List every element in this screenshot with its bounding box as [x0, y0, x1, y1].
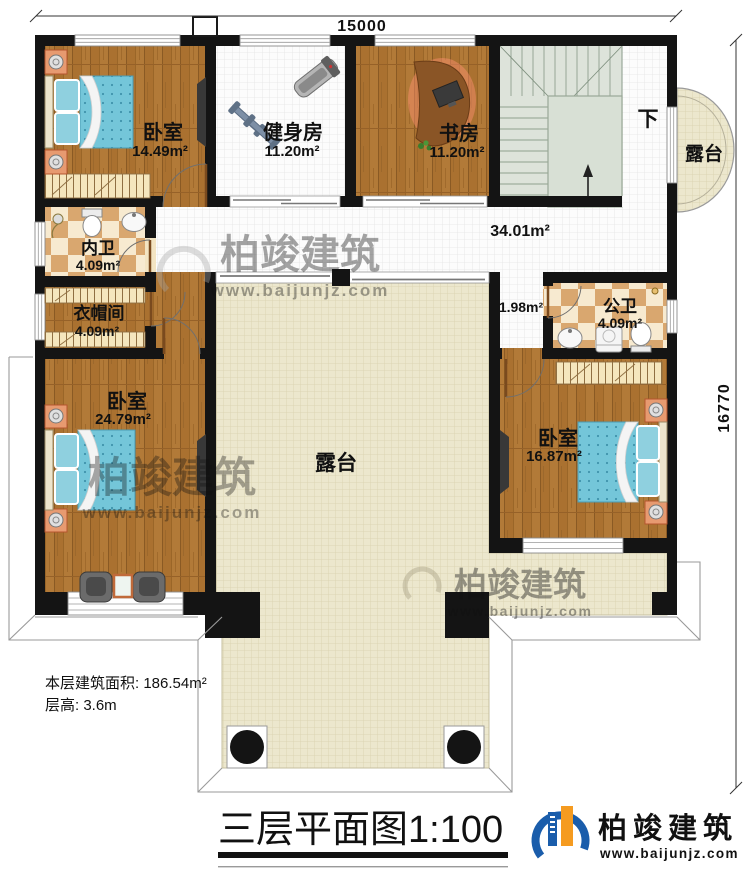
label-terrace-center: 露台 [315, 451, 357, 475]
brand-swoosh-icon [536, 815, 586, 856]
wall-bedroom-br-left [489, 359, 500, 538]
label-study: 书房 [439, 121, 479, 145]
stair-landing [548, 96, 622, 207]
watermark-name: 柏竣建筑 [454, 566, 586, 603]
dim-right-value: 16770 [716, 383, 733, 433]
label-corridor-area: 34.01m² [490, 223, 550, 240]
watermark-bedroom: 柏竣建筑 www.baijunjz.com [82, 454, 262, 522]
area-public-bath: 4.09m² [598, 315, 643, 331]
column-terrace-far-right [652, 592, 677, 615]
side-table [114, 575, 132, 597]
brand-name: 柏竣建筑 [598, 811, 738, 845]
label-bedroom-br: 卧室 [538, 426, 578, 450]
tv-bedroom-top-left [197, 77, 206, 147]
title-underline-thick [218, 852, 508, 858]
area-bedroom-bl: 24.79m² [95, 411, 151, 428]
window-top-gym [240, 35, 330, 46]
label-bedroom-bl: 卧室 [107, 389, 147, 413]
watermark-url: www.baijunjz.com [210, 281, 390, 300]
chimney [193, 17, 217, 36]
info-floor-area: 本层建筑面积: 186.54m² [45, 675, 207, 692]
wall-vestibule-left [489, 272, 500, 359]
wardrobe-cloakroom-top [45, 288, 145, 303]
label-stairs-down: 下 [638, 108, 659, 131]
door-terrace-right [667, 107, 677, 183]
opening-vestibule [500, 272, 543, 283]
floor-vestibule [500, 283, 543, 348]
tv-bedroom-bottom-right [500, 430, 509, 494]
area-bedroom-br: 16.87m² [526, 448, 582, 465]
window-left-cloakroom [35, 294, 45, 340]
label-bedroom-tl: 卧室 [143, 120, 183, 144]
page-title: 三层平面图1:100 [218, 809, 503, 851]
window-top-study [375, 35, 475, 46]
title-block: 三层平面图1:100 [218, 809, 508, 867]
area-inner-bath: 4.09m² [76, 257, 121, 273]
slider-study [363, 196, 487, 207]
wall-gym-study [345, 46, 356, 196]
watermark-name: 柏竣建筑 [88, 454, 256, 501]
watermark-url: www.baijunjz.com [82, 503, 262, 522]
window-right-publicbath [667, 300, 677, 333]
wardrobe-bedroom-top-left [45, 174, 150, 198]
label-gym: 健身房 [263, 120, 323, 144]
wardrobe-bedroom-bottom-right [556, 362, 662, 384]
window-left-innerbath [35, 222, 45, 266]
watermark-name: 柏竣建筑 [220, 233, 380, 277]
window-top-bedroom [75, 35, 180, 46]
wall-exterior-right-upper [667, 35, 677, 107]
wall-cloakroom-bottom [35, 348, 156, 359]
label-public-bath: 公卫 [603, 297, 637, 316]
slider-gym [230, 196, 340, 207]
brand-url: www.baijunjz.com [599, 846, 739, 861]
label-vestibule-area: 1.98m² [499, 299, 544, 315]
label-terrace-right: 露台 [685, 142, 723, 165]
dim-top-value: 15000 [337, 18, 387, 35]
wall-innerbath-bottom [35, 276, 156, 287]
wall-study-stairs [489, 46, 500, 196]
wall-exterior-right-lower [667, 333, 677, 615]
area-study: 11.20m² [429, 144, 484, 161]
label-cloakroom: 衣帽间 [74, 303, 125, 323]
window-bottom-bedroom-br [523, 538, 623, 553]
area-bedroom-tl: 14.49m² [132, 143, 188, 160]
watermark-url: www.baijunjz.com [447, 603, 593, 619]
floor-plan-canvas: 15000 16770 柏竣建筑 www.baijunjz.com 柏竣建筑 w… [0, 0, 750, 873]
passage-stairs-corridor [622, 196, 667, 207]
brand-logo: 柏竣建筑 www.baijunjz.com [536, 806, 739, 861]
wall-terrace-left [205, 272, 216, 592]
area-gym: 11.20m² [264, 143, 319, 160]
title-underline-thin [218, 866, 508, 867]
label-inner-bath: 内卫 [81, 238, 115, 258]
column-terrace-left [205, 592, 260, 638]
area-cloakroom: 4.09m² [75, 323, 120, 339]
info-floor-height: 层高: 3.6m [45, 697, 117, 714]
